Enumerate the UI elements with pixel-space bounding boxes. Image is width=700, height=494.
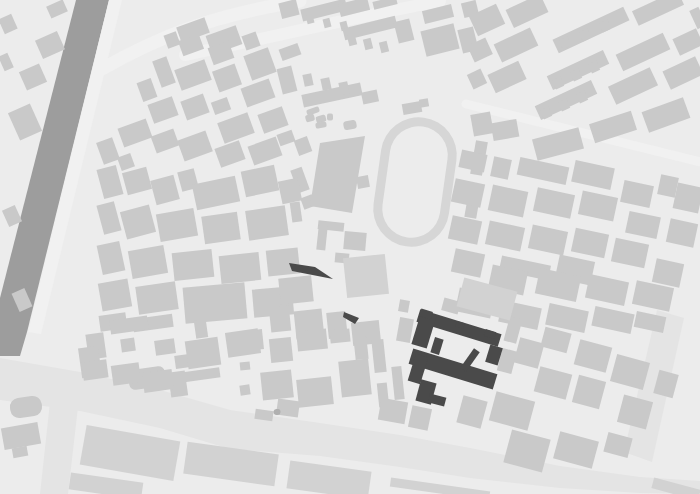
building <box>269 306 292 333</box>
city-map-canvas <box>0 0 700 494</box>
building <box>142 369 174 393</box>
building <box>353 336 368 360</box>
building <box>183 282 248 323</box>
building <box>201 212 241 245</box>
building <box>185 337 222 369</box>
building <box>266 247 301 276</box>
building <box>154 338 176 356</box>
building <box>343 254 389 298</box>
building <box>194 319 208 338</box>
building <box>470 111 494 136</box>
building <box>296 376 334 408</box>
building <box>260 369 294 400</box>
building <box>356 175 370 189</box>
building <box>398 299 410 313</box>
building <box>225 328 261 357</box>
building <box>276 399 300 418</box>
building <box>172 249 215 281</box>
building <box>329 328 350 343</box>
building <box>111 362 142 386</box>
figure-ground-site-plan <box>0 0 700 494</box>
building <box>338 359 372 398</box>
building <box>239 384 250 395</box>
building <box>98 279 132 312</box>
building <box>135 281 179 314</box>
building <box>120 338 136 353</box>
building <box>378 398 408 424</box>
building <box>81 359 108 380</box>
building <box>327 114 333 121</box>
building <box>219 252 262 284</box>
building <box>343 231 366 251</box>
building <box>278 275 314 304</box>
building <box>245 205 289 240</box>
building <box>240 361 251 370</box>
building <box>269 337 293 363</box>
building <box>296 328 328 351</box>
building <box>419 98 429 107</box>
